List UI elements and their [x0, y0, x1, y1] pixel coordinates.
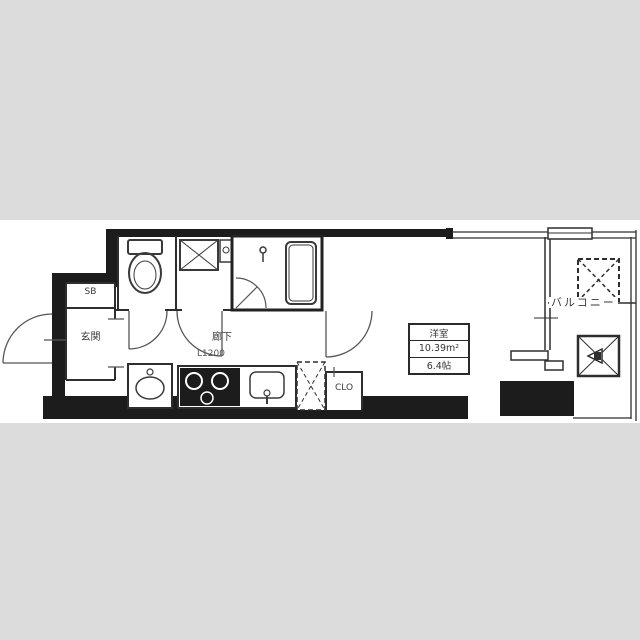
door-arcs — [129, 311, 372, 357]
room-name-label: 洋室 — [410, 325, 468, 340]
shoe-box-label: SB — [66, 288, 115, 297]
equipment-space-cross — [578, 259, 619, 301]
washbasin-unit — [128, 364, 172, 408]
sliding-door-pane-2 — [545, 361, 563, 370]
wall-bottom-right-block — [500, 381, 574, 416]
laundry-faucet-box — [220, 240, 232, 262]
toilet-seat — [134, 261, 156, 289]
floor-plan-drawing — [0, 0, 640, 640]
entrance-door-arc — [3, 314, 52, 363]
laundry-pan-icon — [180, 240, 232, 270]
unit-bath — [232, 236, 322, 310]
toilet-icon — [128, 240, 162, 293]
laundry-faucet — [223, 247, 229, 253]
wall-window-end-cap — [446, 228, 453, 239]
top-window-lines — [452, 232, 636, 238]
window-wall-lines — [545, 237, 550, 350]
closet-label: CLO — [326, 384, 362, 393]
entrance-label: 玄関 — [66, 333, 115, 343]
room-area-m2-label: 10.39m² — [410, 340, 468, 356]
toilet-tank — [128, 240, 162, 254]
wall-left — [52, 273, 65, 416]
room-info-box: 洋室 10.39m² 6.4帖 — [408, 323, 470, 375]
room-door-swing — [326, 311, 372, 357]
top-window — [452, 228, 636, 239]
balcony-label: バルコニー — [549, 297, 618, 308]
kitchen-strip — [128, 362, 325, 410]
entrance-door-swing — [3, 314, 52, 363]
corridor-width-label: L1200 — [197, 350, 225, 359]
water-block — [115, 236, 233, 310]
washer-pan-cross — [180, 240, 218, 270]
sliding-door-pane-1 — [511, 351, 548, 360]
toilet-door-swing — [129, 311, 167, 349]
balcony-outer-edge — [631, 230, 636, 421]
evacuation-hatch-glyph — [594, 352, 601, 360]
corridor-label: 廊下 — [212, 333, 232, 343]
floor-plan-page: SB 玄関 廊下 L1200 CLO バルコニー 洋室 10.39m² 6.4帖 — [0, 0, 640, 640]
room-area-jo-label: 6.4帖 — [410, 357, 468, 373]
